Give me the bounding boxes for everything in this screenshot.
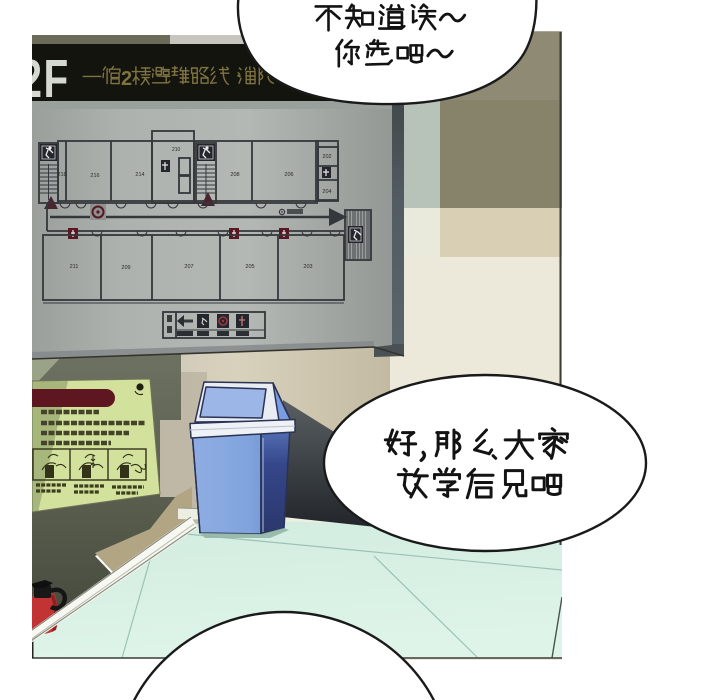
svg-text:218: 218 — [57, 172, 66, 178]
svg-text:206: 206 — [284, 172, 293, 178]
svg-text:204: 204 — [322, 189, 331, 195]
svg-text:210: 210 — [172, 147, 181, 153]
svg-text:207: 207 — [184, 264, 193, 270]
svg-text:202: 202 — [322, 154, 331, 160]
svg-text:208: 208 — [230, 172, 239, 178]
svg-text:203: 203 — [303, 264, 312, 270]
svg-text:205: 205 — [245, 264, 254, 270]
svg-text:209: 209 — [121, 265, 130, 271]
svg-text:214: 214 — [135, 172, 144, 178]
svg-text:211: 211 — [70, 264, 79, 270]
svg-text:2: 2 — [121, 68, 132, 90]
svg-text:216: 216 — [90, 173, 99, 179]
